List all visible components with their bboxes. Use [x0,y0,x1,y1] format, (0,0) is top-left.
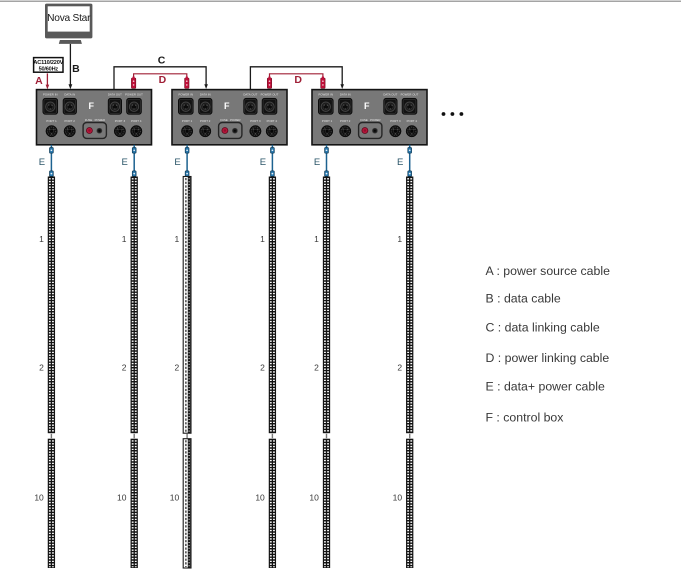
svg-text:C : data linking cable: C : data linking cable [486,321,600,335]
svg-text:10: 10 [34,493,44,503]
svg-text:PORT 4: PORT 4 [267,119,278,123]
svg-text:50/60Hz: 50/60Hz [39,67,59,73]
svg-text:F: F [224,101,230,111]
svg-text:10: 10 [117,493,127,503]
svg-text:10: 10 [170,493,180,503]
svg-text:PORT 4: PORT 4 [407,119,418,123]
svg-text:E: E [314,157,320,168]
svg-text:FUSE: FUSE [220,118,228,122]
svg-text:10: 10 [393,493,403,503]
svg-text:AC110/220V: AC110/220V [33,60,63,66]
svg-text:E: E [260,157,266,168]
svg-text:DATA IN: DATA IN [64,93,75,97]
svg-text:DATA OUT: DATA OUT [383,93,397,97]
svg-text:E: E [174,157,180,168]
svg-text:E: E [39,157,45,168]
svg-text:PORT 3: PORT 3 [115,119,126,123]
svg-text:2: 2 [260,363,265,373]
svg-text:PORT 1: PORT 1 [46,119,57,123]
svg-text:2: 2 [314,363,319,373]
svg-text:1: 1 [260,234,265,244]
svg-text:B: B [72,63,80,75]
svg-text:DATA OUT: DATA OUT [108,93,122,97]
svg-text:F: F [364,101,370,111]
svg-text:FUSE: FUSE [360,118,368,122]
svg-text:POWER IN: POWER IN [178,93,193,97]
svg-text:1: 1 [314,234,319,244]
svg-text:PORT 2: PORT 2 [340,119,351,123]
svg-text:2: 2 [174,363,179,373]
svg-text:A: A [35,75,43,87]
svg-text:F : control box: F : control box [486,410,565,424]
svg-text:F: F [88,101,94,111]
svg-text:D: D [294,74,302,86]
svg-text:E: E [122,157,128,168]
svg-text:2: 2 [397,363,402,373]
svg-text:POWER: POWER [95,118,105,122]
svg-text:PORT 2: PORT 2 [64,119,75,123]
svg-text:FUSE: FUSE [85,118,93,122]
svg-text:10: 10 [309,493,319,503]
svg-text:POWER IN: POWER IN [318,93,333,97]
svg-text:1: 1 [39,234,44,244]
svg-text:PORT 1: PORT 1 [182,119,193,123]
svg-text:PORT 2: PORT 2 [200,119,211,123]
svg-text:POWER: POWER [370,118,380,122]
svg-text:E: E [397,157,403,168]
svg-text:1: 1 [397,234,402,244]
svg-text:D : power linking cable: D : power linking cable [486,351,610,365]
svg-text:POWER OUT: POWER OUT [261,93,279,97]
svg-text:PORT 3: PORT 3 [390,119,401,123]
svg-text:1: 1 [174,234,179,244]
svg-text:2: 2 [39,363,44,373]
svg-text:DATA IN: DATA IN [340,93,351,97]
svg-text:PORT 3: PORT 3 [250,119,261,123]
svg-text:E : data+ power cable: E : data+ power cable [486,379,605,393]
svg-text:PORT 4: PORT 4 [131,119,142,123]
svg-text:Nova Star: Nova Star [47,13,91,24]
svg-text:POWER OUT: POWER OUT [125,93,143,97]
svg-text:DATA IN: DATA IN [200,93,211,97]
svg-text:B : data cable: B : data cable [486,292,561,306]
svg-text:DATA OUT: DATA OUT [243,93,257,97]
svg-text:1: 1 [122,234,127,244]
svg-text:D: D [159,74,167,86]
svg-text:PORT 1: PORT 1 [322,119,333,123]
svg-text:POWER: POWER [230,118,240,122]
svg-text:POWER OUT: POWER OUT [401,93,419,97]
svg-text:C: C [158,55,166,67]
svg-text:A : power source cable: A : power source cable [486,264,611,278]
svg-text:POWER IN: POWER IN [43,93,58,97]
svg-text:10: 10 [255,493,265,503]
svg-text:2: 2 [122,363,127,373]
